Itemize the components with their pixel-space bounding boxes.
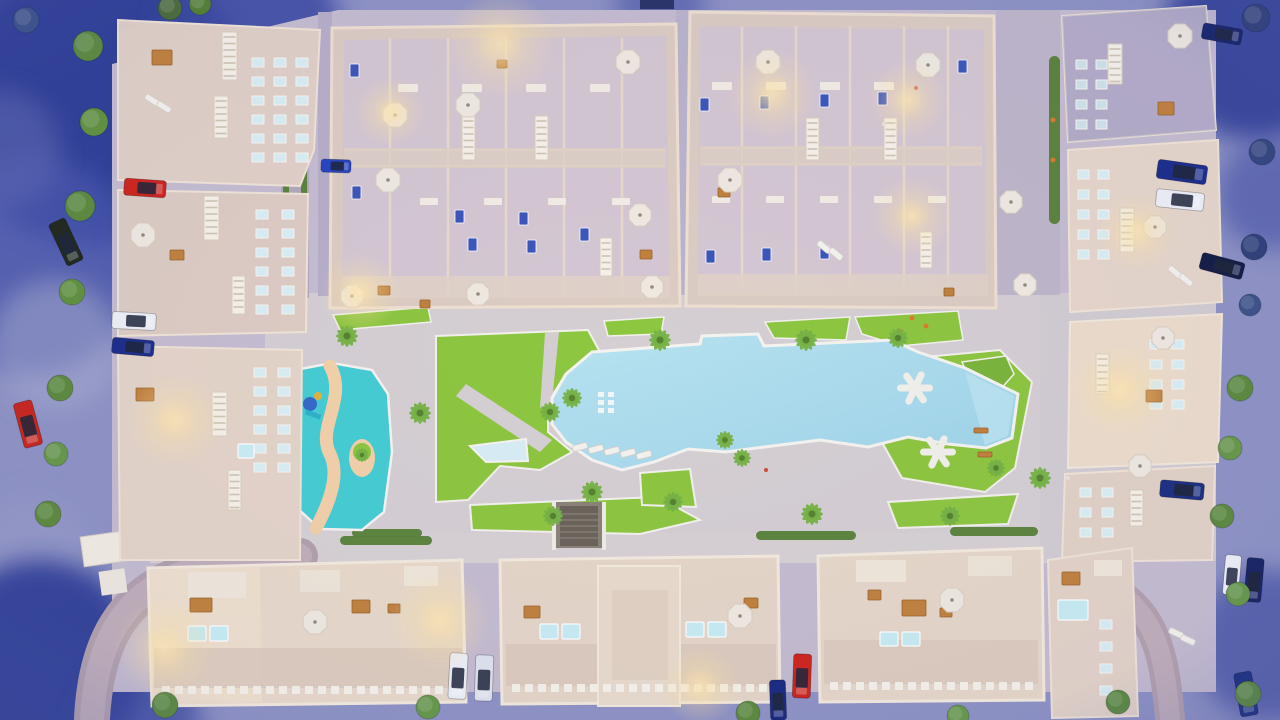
aerial-site-render: Aerial dusk 3D architectural render of a… <box>0 0 1280 720</box>
layer-atmosphere <box>0 0 1280 720</box>
dusk-vignette <box>0 0 1280 720</box>
scene-svg <box>0 0 1280 720</box>
